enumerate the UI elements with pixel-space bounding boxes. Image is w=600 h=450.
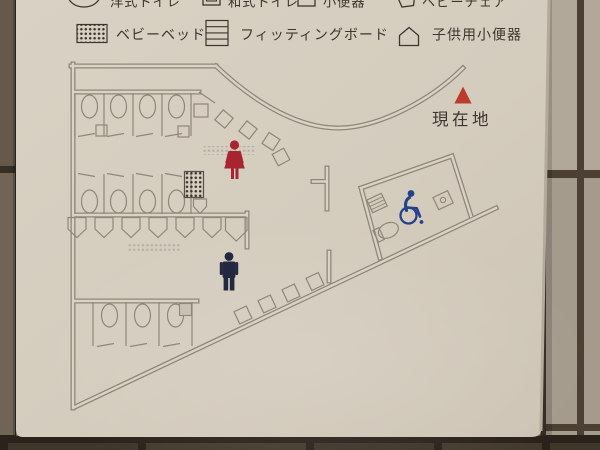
service-box (180, 304, 192, 316)
legend-label: 和式トイレ (228, 0, 299, 10)
legend-label: 子供用小便器 (432, 27, 522, 43)
scene: 洋式トイレ 和式トイレ 小便器 ベビーチェア ベビーベッド フィッティングボード… (0, 0, 600, 450)
restroom-map-photo: 洋式トイレ 和式トイレ 小便器 ベビーチェア ベビーベッド フィッティングボード… (0, 0, 600, 450)
baby-bed-marker (185, 172, 204, 198)
braille-strip (128, 243, 180, 252)
legend-label: 洋式トイレ (110, 0, 181, 10)
legend-label: 小便器 (323, 0, 366, 10)
baby-bed-icon (77, 25, 107, 43)
wall-tiles-left (0, 0, 16, 450)
current-location-label: 現在地 (432, 110, 492, 129)
legend-label: ベビーチェア (422, 0, 507, 10)
legend-label: フィッティングボード (240, 27, 389, 43)
legend-label: ベビーベッド (116, 27, 206, 43)
legend-item-baby-bed: ベビーベッド (77, 25, 206, 43)
